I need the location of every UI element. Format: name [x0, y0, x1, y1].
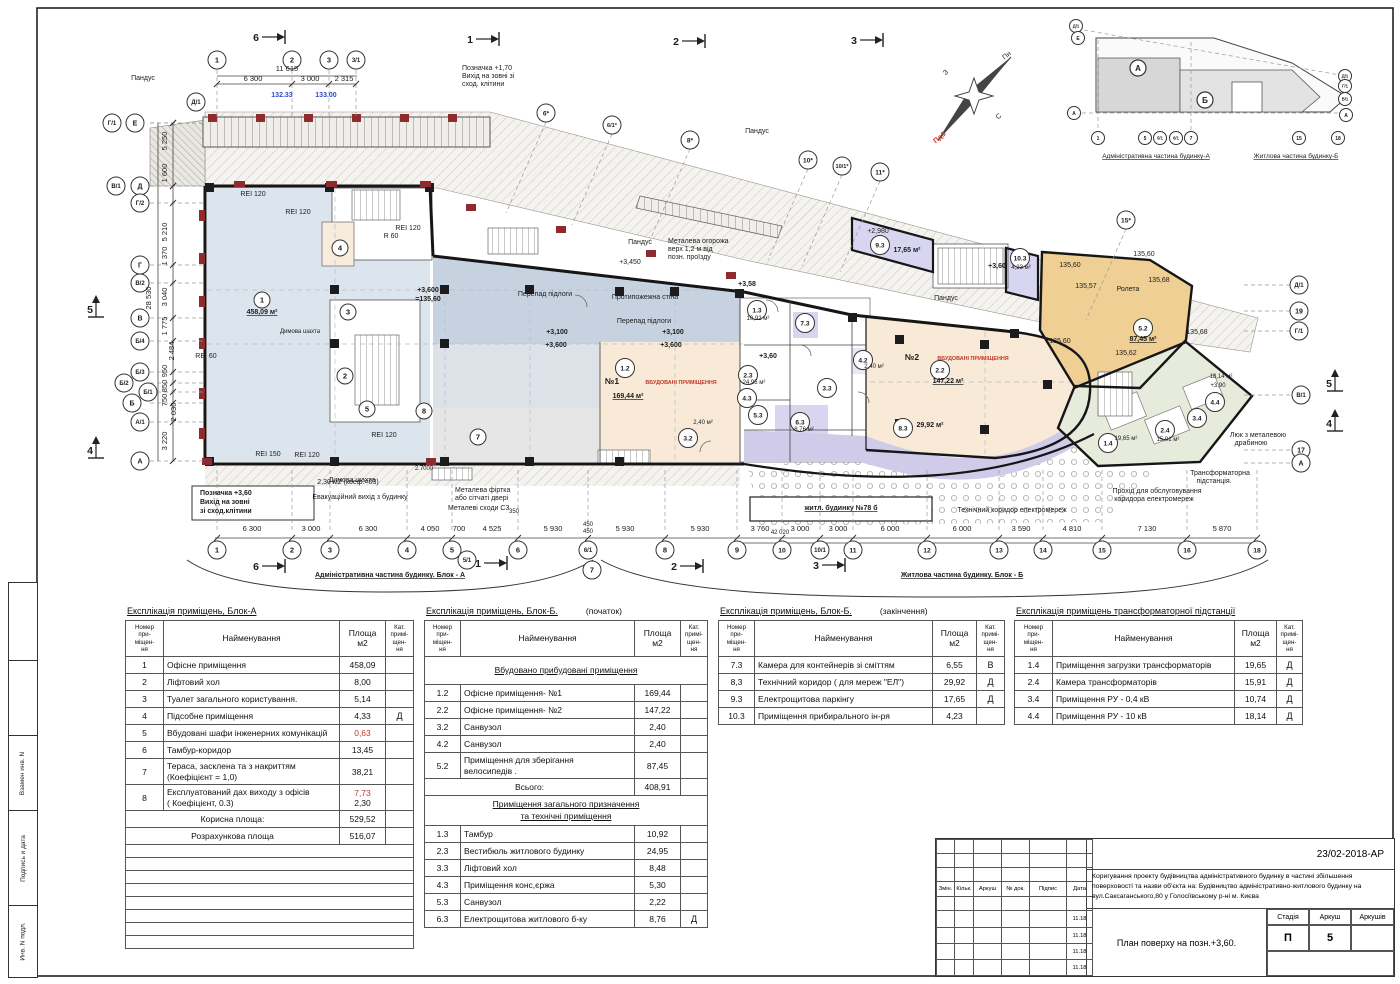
- plan-label: 135,68: [1186, 329, 1208, 336]
- plan-label: REI 60: [195, 353, 217, 360]
- plan-label: Пандус: [934, 295, 958, 302]
- axis-label: 7: [590, 566, 594, 575]
- plan-label: 87,45 м²: [1130, 336, 1158, 343]
- axis-label: А: [137, 459, 142, 466]
- revision-cell: [955, 897, 974, 911]
- axis-label: 14: [1039, 547, 1047, 554]
- plan-label: 6 000: [881, 524, 900, 533]
- plan-label: 8: [422, 407, 426, 416]
- axis-label: Б: [129, 401, 134, 408]
- axis-label: 10/1: [814, 548, 826, 554]
- axis-label: 12: [923, 547, 931, 554]
- axis-label: 10*: [803, 157, 813, 164]
- plan-label: 2.7000: [415, 466, 434, 472]
- plan-label: 950: [160, 365, 169, 378]
- plan-label: 17,65 м²: [894, 247, 922, 254]
- plan-label: зі сход.клітини: [200, 507, 252, 515]
- axis-label: 1: [215, 546, 219, 555]
- plan-label: Пандус: [628, 239, 652, 246]
- axis-label: В/1: [111, 184, 121, 190]
- plan-label: 135,60: [1133, 251, 1155, 258]
- axis-label: Г/1: [1295, 329, 1304, 335]
- revision-cell: [974, 928, 1002, 944]
- plan-label: підстанція.: [1196, 477, 1231, 485]
- revision-cell: [974, 854, 1002, 868]
- revision-cell: [1030, 840, 1067, 854]
- axis-label: 2: [290, 546, 294, 555]
- revision-cell: [974, 868, 1002, 882]
- revision-cell: [1002, 897, 1030, 911]
- plan-label: 19,65 м²: [1115, 436, 1138, 442]
- axis-label: 6/1: [1173, 136, 1179, 141]
- plan-label: 5.3: [753, 413, 762, 420]
- plan-label: 4 525: [483, 524, 502, 533]
- revision-row: 11.18: [937, 960, 1093, 976]
- plan-label: Б: [1202, 96, 1208, 105]
- plan-label: 135,57: [1075, 283, 1097, 290]
- plan-label: 3 220: [160, 432, 169, 451]
- title-block: Змін.Кільк.Аркуш№ док.ПідписДата11.1811.…: [935, 838, 1395, 977]
- side-strip-box: [8, 660, 38, 737]
- plan-label: 132.33: [271, 92, 293, 99]
- table-header-row: Номер при- міщен- няНайменуванняПлоща м2…: [425, 621, 708, 657]
- plan-label: Ролета: [1117, 286, 1140, 293]
- table-row: 4.2Санвузол2,40: [425, 736, 708, 753]
- section-mark: 6: [253, 561, 259, 573]
- column-header: Кат. примі- щен- ня: [386, 621, 414, 657]
- axis-label: Б/1: [143, 390, 153, 396]
- revision-col-header: Аркуш: [974, 882, 1002, 897]
- axis-label: Б/2: [119, 381, 129, 387]
- axis-label: 1: [215, 56, 219, 65]
- plan-label: 700: [453, 524, 466, 533]
- plan-label: 450: [583, 529, 594, 535]
- table-row: 3.3Ліфтовий хол8,48: [425, 860, 708, 877]
- revision-cell: [937, 868, 955, 882]
- plan-label: 5 210: [160, 223, 169, 242]
- plan-label: Пандус: [745, 128, 769, 135]
- table-row: Вбудовано прибудовані приміщення: [425, 657, 708, 685]
- plan-label: 2.2: [935, 368, 944, 375]
- axis-label: Б/4: [135, 339, 145, 345]
- plan-label: Перепад підлоги: [617, 317, 671, 325]
- table-row: 3.4Приміщення РУ - 0,4 кВ10,74Д: [1015, 691, 1303, 708]
- plan-label: 2,30 м2 (коеф.=03): [317, 479, 378, 486]
- column-header: Найменування: [461, 621, 635, 657]
- plan-label: ВБУДОВАНІ ПРИМІЩЕННЯ: [937, 356, 1008, 362]
- plan-label: 6 300: [243, 524, 262, 533]
- axis-label: 18: [1335, 136, 1341, 142]
- section-mark: 3: [813, 560, 819, 572]
- plan-label: +3,450: [619, 259, 641, 266]
- column-header: Площа м2: [1235, 621, 1277, 657]
- revision-row: [937, 840, 1093, 854]
- column-header: Номер при- міщен- ня: [1015, 621, 1053, 657]
- plan-label: 2 315: [335, 74, 354, 83]
- plan-label: 3 000: [791, 524, 810, 533]
- table-title: Експлікація приміщень, Блок-Б.: [720, 606, 852, 616]
- revision-cell: [955, 868, 974, 882]
- axis-label: 17: [1297, 448, 1305, 455]
- revision-cell: [974, 944, 1002, 960]
- plan-label: 3 000: [301, 74, 320, 83]
- revision-cell: [937, 944, 955, 960]
- plan-label: REI 120: [395, 225, 420, 232]
- revision-cell: [1002, 868, 1030, 882]
- axis-label: В: [137, 316, 142, 323]
- plan-label: Металеві сходи С3: [448, 504, 509, 512]
- axis-label: Д/1: [1294, 283, 1304, 289]
- plan-label: Люк з металевою: [1230, 432, 1286, 439]
- table-row: Розрахункова площа516,07: [126, 828, 414, 845]
- plan-label: 1.3: [752, 308, 761, 315]
- table-row: 2.4Камера трансформаторів15,91Д: [1015, 674, 1303, 691]
- revision-cell: [974, 840, 1002, 854]
- plan-label: +3,90: [1210, 383, 1226, 389]
- plan-label: REI 120: [294, 452, 319, 459]
- column-header: Площа м2: [340, 621, 386, 657]
- plan-label: 6 300: [244, 74, 263, 83]
- revision-cell: [955, 854, 974, 868]
- section-mark: 4: [87, 445, 93, 457]
- axis-label: Д/1: [1342, 74, 1349, 79]
- project-description: Коригування проекту будівництва адмініст…: [1087, 870, 1394, 909]
- drawing-title: План поверху на позн.+3,60.: [1087, 909, 1267, 976]
- axis-label: 3: [328, 546, 332, 555]
- plan-label: +3,60: [759, 353, 777, 360]
- plan-label: 4 050: [421, 524, 440, 533]
- axis-label: 5/1: [1157, 136, 1163, 141]
- axis-label: 5: [450, 546, 454, 555]
- plan-label: Перепад підлоги: [518, 290, 572, 298]
- plan-label: REI 120: [371, 432, 396, 439]
- axis-label: 15: [1098, 547, 1106, 554]
- plan-label: Житлова частина будинку-Б: [1254, 152, 1339, 160]
- table-row: [126, 884, 414, 897]
- revision-cell: [1030, 911, 1067, 928]
- table-note: (початок): [586, 606, 622, 616]
- section-mark: 2: [673, 36, 679, 48]
- plan-label: 29,92 м²: [917, 422, 945, 429]
- side-strip-box: [8, 582, 38, 662]
- table-row: 3.2Санвузол2,40: [425, 719, 708, 736]
- axis-label: Г/1: [1342, 84, 1349, 89]
- revision-cell: [974, 960, 1002, 976]
- axis-label: 6/1*: [607, 123, 618, 129]
- revision-cell: [937, 854, 955, 868]
- revision-cell: [1030, 868, 1067, 882]
- stage-value: П: [1267, 925, 1309, 951]
- plan-label: 1 600: [160, 164, 169, 183]
- plan-label: Трансформаторна: [1190, 470, 1250, 477]
- axis-label: 16: [1183, 547, 1191, 554]
- revision-cell: [1002, 928, 1030, 944]
- table-row: [126, 936, 414, 949]
- revision-cell: [1002, 960, 1030, 976]
- axis-label: 3: [327, 56, 331, 65]
- plan-label: +3,100: [662, 329, 684, 336]
- plan-label: +3,60: [988, 263, 1006, 270]
- revision-cell: [937, 928, 955, 944]
- plan-label: 18,14 м²: [1210, 374, 1233, 380]
- revision-cell: [1002, 840, 1030, 854]
- axis-label: Г/1: [108, 121, 117, 127]
- plan-label: 3 040: [160, 288, 169, 307]
- stage-sheet-stamp: Стадія Аркуш Аркушів П 5: [1267, 909, 1394, 976]
- table-row: 6.3Електрощитова житлового б-ку8,76Д: [425, 911, 708, 928]
- plan-label: 3 000: [302, 524, 321, 533]
- column-header: Кат. примі- щен- ня: [977, 621, 1005, 657]
- table-row: Корисна площа:529,52: [126, 811, 414, 828]
- title-block-revision-grid: Змін.Кільк.Аркуш№ док.ПідписДата11.1811.…: [936, 839, 1087, 976]
- explication-table-block-a: Експлікація приміщень, Блок-АНомер при- …: [125, 606, 417, 949]
- plan-label: +3,100: [546, 329, 568, 336]
- column-header: Найменування: [1053, 621, 1235, 657]
- plan-label: R 60: [384, 233, 399, 240]
- plan-label: 4.4: [1210, 400, 1219, 407]
- plan-label: позн. проїзду: [668, 254, 711, 261]
- axis-label: 10/1*: [835, 164, 849, 170]
- plan-label: 450: [583, 522, 594, 528]
- axis-label: 18: [1253, 547, 1261, 554]
- table-header-row: Номер при- міщен- няНайменуванняПлоща м2…: [126, 621, 414, 657]
- plan-label: Вихід на зовні: [200, 498, 250, 506]
- section-mark: 1: [475, 558, 481, 570]
- explication-table-block-b-2: Експлікація приміщень, Блок-Б.(закінченн…: [718, 606, 1008, 725]
- table-row: 2.3Вестибюль житлового будинку24,95: [425, 843, 708, 860]
- plan-label: 5 930: [616, 524, 635, 533]
- section-mark: 4: [1326, 418, 1332, 430]
- stage-label: Стадія: [1267, 909, 1309, 925]
- plan-label: 8.3: [898, 426, 907, 433]
- explication-table-transformer: Експлікація приміщень трансформаторної п…: [1014, 606, 1306, 725]
- plan-label: 135,60: [1049, 338, 1071, 345]
- axis-label: 11*: [875, 169, 885, 176]
- table-row: [126, 845, 414, 858]
- axis-label: 13: [995, 547, 1003, 554]
- revision-cell: [955, 911, 974, 928]
- table-row: 7.3Камера для контейнерів зі сміттям6,55…: [719, 657, 1005, 674]
- revision-cell: [1002, 911, 1030, 928]
- column-header: Номер при- міщен- ня: [126, 621, 164, 657]
- plan-label: 135,68: [1148, 277, 1170, 284]
- axis-label: 9: [735, 546, 739, 555]
- plan-label: 3 590: [1012, 524, 1031, 533]
- plan-label: Прохід для обслуговування: [1112, 487, 1201, 495]
- table-title: Експлікація приміщень, Блок-Б.: [426, 606, 558, 616]
- axis-label: Е: [133, 121, 138, 128]
- plan-label: драбиною: [1235, 439, 1268, 447]
- table-row: 1.2Офісне приміщення- №1169,44: [425, 685, 708, 702]
- plan-label: 5.2: [1138, 326, 1147, 333]
- plan-label: 3: [346, 308, 350, 317]
- plan-label: Адміністративна частина будинку. Блок - …: [315, 571, 465, 579]
- column-header: Кат. примі- щен- ня: [681, 621, 708, 657]
- plan-label: +3,58: [738, 281, 756, 288]
- table-row: 1.4Приміщення загрузки трансформаторів19…: [1015, 657, 1303, 674]
- plan-label: ВБУДОВАНІ ПРИМІЩЕННЯ: [645, 380, 716, 386]
- plan-label: 9.3: [875, 243, 884, 250]
- plan-label: Позначка +1,70: [462, 65, 512, 72]
- side-strip-label-vzamen: Взамен инв. N: [8, 735, 38, 812]
- table-row: 5Вбудовані шафи інженерних комунікацій0,…: [126, 725, 414, 742]
- sheet-label: Аркуш: [1309, 909, 1351, 925]
- axis-label: 5/1: [463, 558, 472, 564]
- plan-label: 133.00: [315, 92, 337, 99]
- plan-label: Пандус: [131, 75, 155, 82]
- table-row: [126, 871, 414, 884]
- plan-label: REI 120: [285, 209, 310, 216]
- plan-label: =135,60: [415, 296, 441, 303]
- side-strip-label-inv: Инв. N подл.: [8, 905, 38, 978]
- axis-label: А/1: [135, 420, 145, 426]
- plan-label: сход. клітини: [462, 80, 504, 88]
- plan-label: 10.3: [1014, 256, 1027, 263]
- plan-label: Металева огорожа: [668, 238, 729, 245]
- plan-label: 15,91 м²: [1157, 437, 1180, 443]
- revision-row: [937, 854, 1093, 868]
- revision-cell: [1030, 928, 1067, 944]
- plan-label: №2: [905, 352, 919, 362]
- plan-label: +2,980: [867, 228, 889, 235]
- plan-label: 2,40 м²: [693, 420, 712, 426]
- plan-label: Димова шахта: [280, 329, 321, 335]
- revision-row: [937, 868, 1093, 882]
- column-header: Найменування: [755, 621, 933, 657]
- column-header: Номер при- міщен- ня: [719, 621, 755, 657]
- revision-col-header: Змін.: [937, 882, 955, 897]
- axis-label: В/1: [1296, 393, 1306, 399]
- plan-label: 2 484: [167, 342, 176, 361]
- section-mark: 3: [851, 35, 857, 47]
- plan-label: 147,22 м²: [933, 378, 965, 385]
- revision-cell: [1030, 960, 1067, 976]
- revision-cell: [937, 840, 955, 854]
- plan-label: 2.3: [743, 373, 752, 380]
- plan-label: REI 150: [255, 451, 280, 458]
- plan-label: Технічний коридор електромереж: [957, 506, 1067, 514]
- revision-cell: [1030, 897, 1067, 911]
- plan-label: А: [1135, 64, 1141, 73]
- axis-label: В/1: [1342, 97, 1349, 102]
- plan-label: коридора електромереж: [1114, 496, 1194, 503]
- table-row: 5.3Санвузол2,22: [425, 894, 708, 911]
- plan-label: 5 930: [544, 524, 563, 533]
- table-row: 8Експлуатований дах виходу з офісів ( Ко…: [126, 785, 414, 811]
- table-row: 1Офісне приміщення458,09: [126, 657, 414, 674]
- plan-label: верх 1,2 м від: [668, 245, 713, 253]
- plan-label: 28 530: [144, 287, 153, 310]
- axis-label: 10: [778, 547, 786, 554]
- revision-cell: [1030, 944, 1067, 960]
- plan-label: 169,44 м²: [613, 393, 645, 400]
- table-row: 1.3Тамбур10,92: [425, 826, 708, 843]
- revision-row: [937, 897, 1093, 911]
- plan-label: 458,09 м²: [247, 309, 279, 316]
- plan-label: 5 870: [1213, 524, 1232, 533]
- plan-label: 4.3: [742, 396, 751, 403]
- room-terrace: [433, 408, 600, 462]
- plan-label: Житлова частина будинку. Блок - Б: [900, 571, 1023, 579]
- plan-label: 350: [509, 509, 520, 515]
- axis-label: 6*: [543, 110, 550, 117]
- plan-label: 135,62: [1115, 350, 1137, 357]
- plan-label: 2.4: [1160, 428, 1169, 435]
- plan-label: 24,95 м²: [743, 380, 766, 386]
- column-header: Найменування: [164, 621, 340, 657]
- plan-label: 10,92 м²: [747, 316, 770, 322]
- plan-label: 4,23 м²: [1011, 265, 1030, 271]
- plan-label: 2,40 м²: [864, 364, 883, 370]
- axis-label: 3/1: [352, 58, 361, 64]
- table-row: [126, 910, 414, 923]
- plan-label: 750: [160, 394, 169, 407]
- plan-label: 2: [343, 372, 347, 381]
- column-header: Площа м2: [635, 621, 681, 657]
- plan-label: +3,600: [417, 287, 439, 294]
- plan-label: +3,600: [545, 342, 567, 349]
- table-row: 9.3Електрощитова паркінгу17,65Д: [719, 691, 1005, 708]
- drawing-sheet: 123455/166/17891010/111121314151618ЕГ/1Д…: [0, 0, 1400, 984]
- plan-label: Протипожежна стіна: [612, 293, 678, 301]
- plan-label: 850: [160, 380, 169, 393]
- plan-label: 3 760: [751, 524, 770, 533]
- plan-label: 1.4: [1103, 441, 1112, 448]
- plan-label: 3 000: [829, 524, 848, 533]
- revision-cell: [974, 897, 1002, 911]
- axis-label: 15: [1296, 136, 1302, 142]
- plan-label: 3.3: [822, 386, 831, 393]
- axis-label: 15*: [1121, 217, 1131, 224]
- axis-label: 8: [663, 546, 667, 555]
- axis-label: 6/1: [584, 548, 593, 554]
- plan-label: Адміністративна частина будинку-А: [1102, 152, 1210, 160]
- plan-label: 5 250: [160, 132, 169, 151]
- axis-label: Д/1: [191, 100, 201, 106]
- axis-label: А: [1298, 461, 1303, 468]
- axis-label: А: [1344, 113, 1348, 119]
- plan-label: №1: [605, 376, 619, 386]
- revision-row: Змін.Кільк.Аркуш№ док.ПідписДата: [937, 882, 1093, 897]
- plan-label: REI 120: [240, 191, 265, 198]
- table-header-row: Номер при- міщен- няНайменуванняПлоща м2…: [1015, 621, 1303, 657]
- plan-label: 7.3: [800, 321, 809, 328]
- table-row: 2.2Офісне приміщення- №2147,22: [425, 702, 708, 719]
- revision-col-header: Підпис: [1030, 882, 1067, 897]
- column-header: Номер при- міщен- ня: [425, 621, 461, 657]
- revision-cell: [1002, 944, 1030, 960]
- table-row: 5.2Приміщення для зберігання велосипедів…: [425, 753, 708, 779]
- revision-col-header: № док.: [1002, 882, 1030, 897]
- column-header: Площа м2: [933, 621, 977, 657]
- sheets-label: Аркушів: [1351, 909, 1394, 925]
- plan-label: 1 775: [160, 317, 169, 336]
- plan-label: 7: [476, 433, 480, 442]
- revision-cell: [955, 960, 974, 976]
- table-row: 6Тамбур-коридор13,45: [126, 742, 414, 759]
- axis-label: В/2: [135, 281, 145, 287]
- table-row: [126, 897, 414, 910]
- revision-row: 11.18: [937, 944, 1093, 960]
- plan-label: або сітчаті двері: [455, 494, 509, 502]
- axis-label: 5: [1144, 136, 1147, 142]
- revision-cell: [974, 911, 1002, 928]
- section-mark: 1: [467, 34, 473, 46]
- explication-table-block-b-1: Експлікація приміщень, Блок-Б.(початок)Н…: [424, 606, 711, 928]
- stamp-empty-cell: [1267, 951, 1394, 976]
- plan-label: 8,76 м²: [794, 427, 813, 433]
- table-title: Експлікація приміщень трансформаторної п…: [1016, 606, 1235, 616]
